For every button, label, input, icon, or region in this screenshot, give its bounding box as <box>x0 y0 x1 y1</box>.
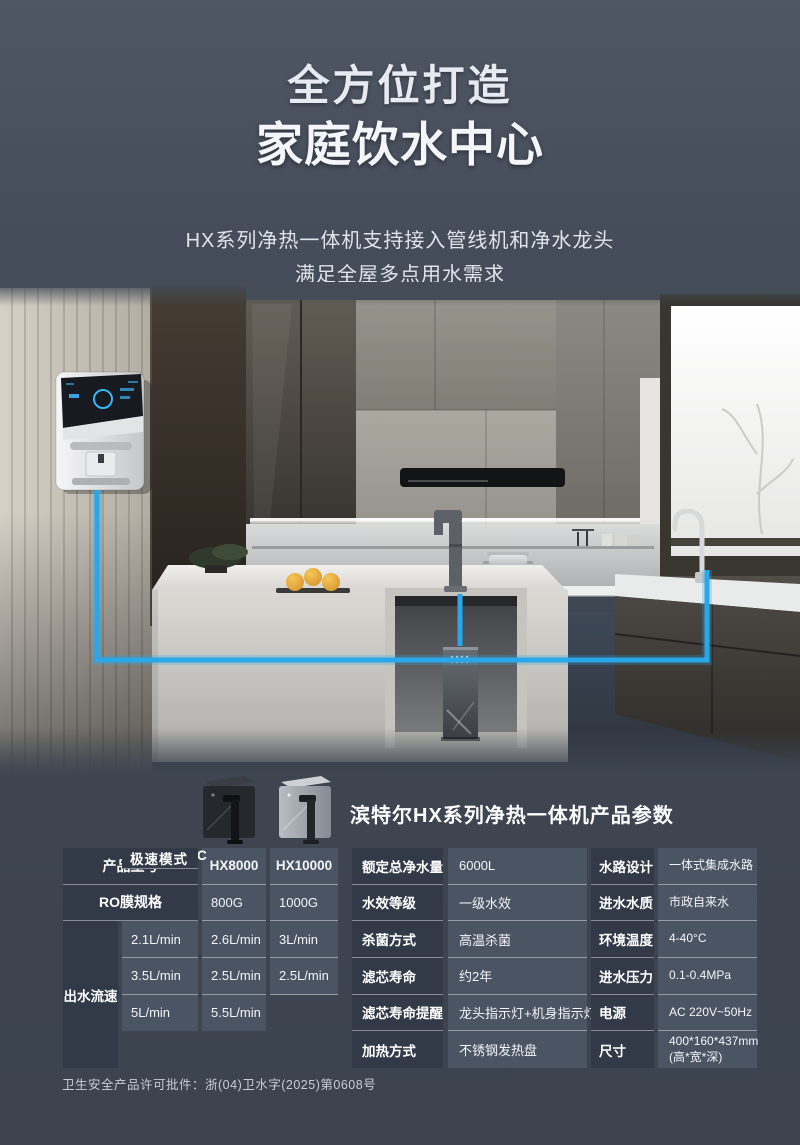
spec-table-performance: 额定总净水量 6000L 水效等级 一级水效 杀菌方式 高温杀菌 滤芯寿命 约2… <box>352 848 587 1068</box>
spec-label-cell: 尺寸 <box>591 1031 654 1068</box>
wall-mounted-dispenser <box>56 372 152 494</box>
spec-table-installation: 水路设计 一体式集成水路 进水水质 市政自来水 环境温度 4-40°C 进水压力… <box>591 848 757 1068</box>
hygiene-license-text: 卫生安全产品许可批件：浙(04)卫水字(2025)第0608号 <box>62 1074 376 1093</box>
window <box>640 294 800 596</box>
spec-label-cell: 进水水质 <box>591 885 654 922</box>
hero-title-line1: 全方位打造 <box>0 52 800 113</box>
spec-value-cell: AC 220V~50Hz <box>658 995 757 1032</box>
thumbnail-hx10000-gray-unit <box>279 776 331 844</box>
product-poster-page: 全方位打造 家庭饮水中心 HX系列净热一体机支持接入管线机和净水龙头 满足全屋多… <box>0 0 800 1145</box>
dispenser-drip-tray <box>72 478 130 485</box>
spec-table-models: 产品型号 HX8000 HX10000 RO膜规格 800G 1000G 出水流… <box>63 848 338 1068</box>
spec-value-cell: 800G <box>202 885 266 922</box>
kitchen-scene-image <box>0 282 800 774</box>
spec-value-cell: 1000G <box>270 885 338 922</box>
spec-value-cell: 高温杀菌 <box>448 921 587 958</box>
spec-value-cell: 不锈钢发热盘 <box>448 1031 587 1068</box>
spec-label-cell: 水路设计 <box>591 848 654 885</box>
spec-value-cell: 市政自来水 <box>658 885 757 922</box>
spec-label-cell: 滤芯寿命提醒 <box>352 995 443 1032</box>
spec-label-cell: 额定总净水量 <box>352 848 443 885</box>
spec-value-cell: 2.1L/min <box>122 921 198 958</box>
spec-value-cell: 0.1-0.4MPa <box>658 958 757 995</box>
left-slat-wall <box>0 288 152 774</box>
hero-subtitle-line1: HX系列净热一体机支持接入管线机和净水龙头 <box>0 224 800 253</box>
spec-value-cell: 400*160*437mm (高*宽*深) <box>658 1031 757 1068</box>
spec-value-cell: 5.5L/min <box>202 995 266 1032</box>
spec-value-cell: 4-40°C <box>658 921 757 958</box>
spec-value-cell: 龙头指示灯+机身指示灯 <box>448 995 587 1032</box>
spec-label-cell: 电源 <box>591 995 654 1032</box>
spec-label-cell: 极速模式 <box>122 848 198 868</box>
spec-value-cell: 3L/min <box>270 921 338 958</box>
spec-label-cell: 杀菌方式 <box>352 921 443 958</box>
spec-label-cell: 滤芯寿命 <box>352 958 443 995</box>
spec-section-title: 滨特尔HX系列净热一体机产品参数 <box>350 799 674 828</box>
spec-label-cell: 进水压力 <box>591 958 654 995</box>
upper-cabinets <box>246 300 660 524</box>
spec-value-cell: 6000L <box>448 848 587 885</box>
spec-label-cell: 加热方式 <box>352 1031 443 1068</box>
spec-value-cell: HX8000 <box>202 848 266 885</box>
range-hood <box>400 468 565 487</box>
spec-value-cell: 一级水效 <box>448 885 587 922</box>
spec-label-cell: RO膜规格 <box>63 885 198 922</box>
spec-value-cell: 一体式集成水路 <box>658 848 757 885</box>
spec-label-cell: 环境温度 <box>591 921 654 958</box>
spec-value-cell: 2.5L/min <box>270 958 338 995</box>
spec-value-cell: HX10000 <box>270 848 338 885</box>
spec-label-cell: 水效等级 <box>352 885 443 922</box>
spec-value-cell: 约2年 <box>448 958 587 995</box>
spec-value-cell: 2.5L/min <box>202 958 266 995</box>
spec-value-cell: 5L/min <box>122 995 198 1032</box>
spec-flow-group-label: 出水流速 <box>63 921 118 1068</box>
thumbnail-hx8000-black-unit <box>203 776 255 844</box>
product-thumbnails <box>193 768 345 850</box>
spec-value-cell: 2.6L/min <box>202 921 266 958</box>
dispenser-handle <box>70 442 132 450</box>
hero-title-line2: 家庭饮水中心 <box>0 106 800 175</box>
spec-value-cell: 3.5L/min <box>122 958 198 995</box>
